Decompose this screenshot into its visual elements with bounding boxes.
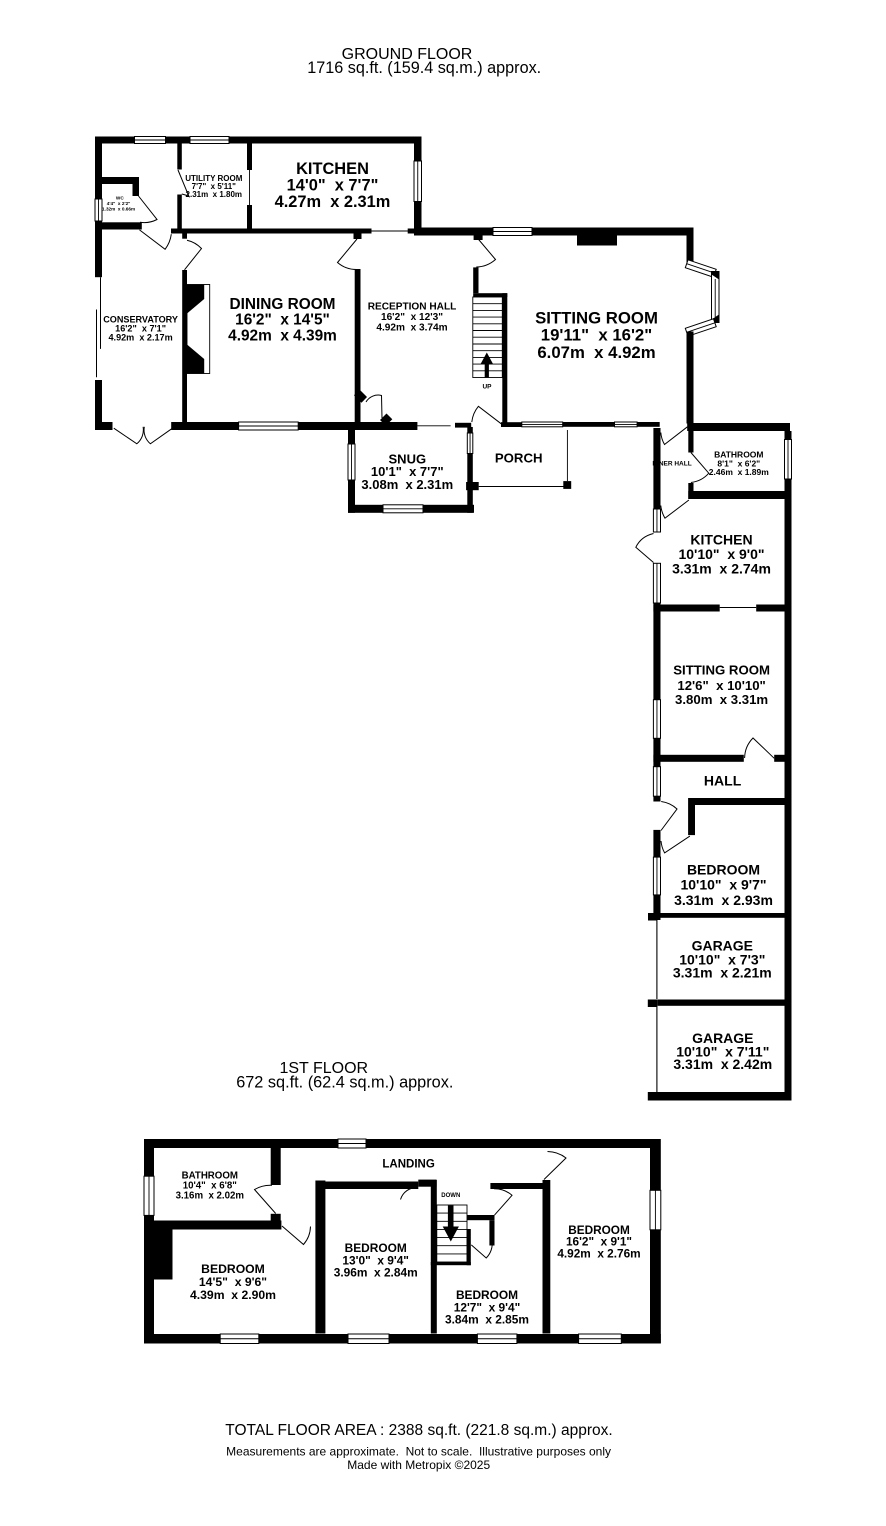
svg-text:Made with Metropix ©2025: Made with Metropix ©2025 <box>347 1458 490 1472</box>
svg-text:3.16m x 2.02m: 3.16m x 2.02m <box>176 1191 245 1202</box>
svg-text:1716 sq.ft. (159.4 sq.m.) appr: 1716 sq.ft. (159.4 sq.m.) approx. <box>307 59 541 77</box>
svg-text:1.32m x 0.66m: 1.32m x 0.66m <box>102 206 135 211</box>
svg-text:SITTING ROOM: SITTING ROOM <box>673 663 770 678</box>
svg-text:3.96m x 2.84m: 3.96m x 2.84m <box>334 1266 418 1280</box>
svg-text:19'11" x 16'2": 19'11" x 16'2" <box>541 326 652 345</box>
svg-text:3.84m x 2.85m: 3.84m x 2.85m <box>445 1313 529 1327</box>
svg-text:3.31m x 2.21m: 3.31m x 2.21m <box>673 965 772 981</box>
svg-text:6.07m x 4.92m: 6.07m x 4.92m <box>537 343 655 362</box>
svg-text:CONSERVATORY: CONSERVATORY <box>103 315 178 325</box>
svg-text:3.31m x 2.74m: 3.31m x 2.74m <box>672 561 771 577</box>
svg-text:Measurements are approximate.: Measurements are approximate. Not to sca… <box>226 1445 611 1459</box>
svg-text:DINING ROOM: DINING ROOM <box>229 296 335 313</box>
svg-text:4.27m x 2.31m: 4.27m x 2.31m <box>275 193 391 211</box>
svg-text:BEDROOM: BEDROOM <box>201 1262 265 1276</box>
svg-text:PORCH: PORCH <box>495 450 543 465</box>
svg-text:2.46m x 1.89m: 2.46m x 1.89m <box>709 467 769 477</box>
svg-text:RECEPTION HALL: RECEPTION HALL <box>368 301 457 312</box>
svg-text:BEDROOM: BEDROOM <box>687 862 760 878</box>
svg-text:TOTAL FLOOR AREA : 2388 sq.ft.: TOTAL FLOOR AREA : 2388 sq.ft. (221.8 sq… <box>225 1422 612 1439</box>
svg-text:DOWN: DOWN <box>441 1193 460 1199</box>
svg-text:672 sq.ft. (62.4 sq.m.) approx: 672 sq.ft. (62.4 sq.m.) approx. <box>236 1073 453 1091</box>
svg-text:4.92m x 4.39m: 4.92m x 4.39m <box>228 327 337 344</box>
svg-text:10'4" x 6'8": 10'4" x 6'8" <box>183 1181 237 1192</box>
svg-text:HALL: HALL <box>704 773 742 789</box>
svg-text:3.08m x 2.31m: 3.08m x 2.31m <box>361 477 453 492</box>
svg-text:3.31m x 2.42m: 3.31m x 2.42m <box>673 1056 772 1072</box>
svg-text:4.92m x 2.76m: 4.92m x 2.76m <box>557 1247 640 1261</box>
svg-text:14'5" x 9'6": 14'5" x 9'6" <box>199 1275 267 1289</box>
svg-text:BATHROOM: BATHROOM <box>182 1170 238 1181</box>
svg-text:SITTING ROOM: SITTING ROOM <box>535 309 658 328</box>
svg-text:16'2" x 14'5": 16'2" x 14'5" <box>235 312 330 329</box>
svg-text:4.92m x 3.74m: 4.92m x 3.74m <box>376 322 447 333</box>
svg-text:4.92m x 2.17m: 4.92m x 2.17m <box>108 333 172 343</box>
svg-text:INNER HALL: INNER HALL <box>652 460 691 467</box>
svg-text:16'2" x 12'3": 16'2" x 12'3" <box>381 312 443 323</box>
svg-text:3.31m x 2.93m: 3.31m x 2.93m <box>674 892 773 908</box>
svg-text:10'10" x 9'7": 10'10" x 9'7" <box>680 877 766 893</box>
svg-text:UP: UP <box>482 383 492 390</box>
svg-text:LANDING: LANDING <box>382 1159 434 1171</box>
svg-text:14'0" x 7'7": 14'0" x 7'7" <box>287 176 379 194</box>
svg-text:10'10" x 9'0": 10'10" x 9'0" <box>678 546 764 562</box>
svg-text:WC: WC <box>116 195 124 200</box>
svg-text:KITCHEN: KITCHEN <box>690 532 752 548</box>
svg-text:2.31m x 1.80m: 2.31m x 1.80m <box>186 190 242 199</box>
svg-text:KITCHEN: KITCHEN <box>296 160 369 178</box>
svg-text:3.80m x 3.31m: 3.80m x 3.31m <box>675 692 768 707</box>
svg-text:4.39m x 2.90m: 4.39m x 2.90m <box>190 1288 276 1302</box>
svg-text:12'6" x 10'10": 12'6" x 10'10" <box>677 678 765 693</box>
svg-text:16'2" x 7'1": 16'2" x 7'1" <box>115 324 166 334</box>
svg-text:4'4" x 2'2": 4'4" x 2'2" <box>107 201 131 206</box>
